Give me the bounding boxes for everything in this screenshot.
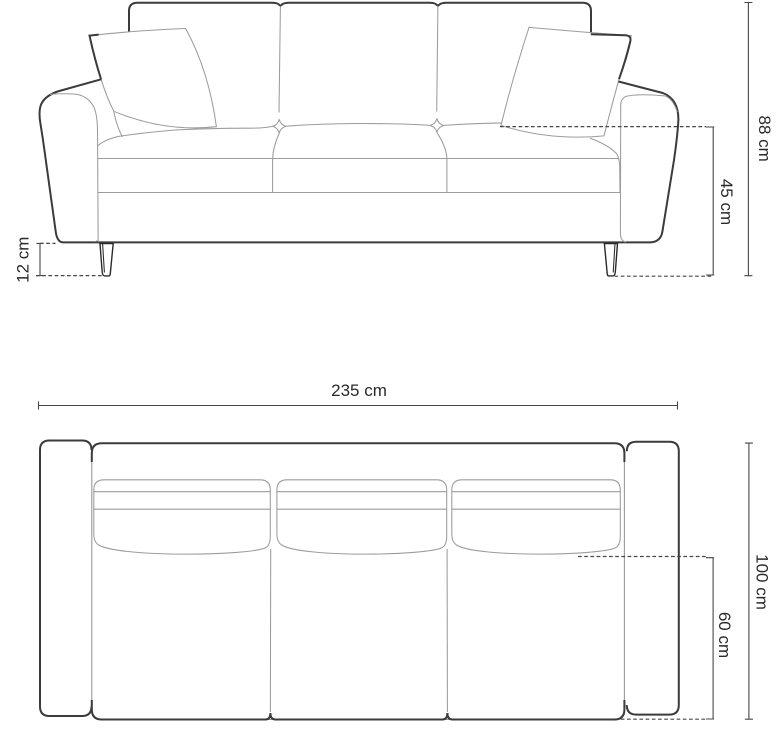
svg-text:60 cm: 60 cm <box>715 612 734 658</box>
svg-text:88 cm: 88 cm <box>755 116 774 162</box>
svg-text:45 cm: 45 cm <box>717 179 736 225</box>
svg-text:235 cm: 235 cm <box>331 381 387 400</box>
svg-text:12 cm: 12 cm <box>13 237 32 283</box>
svg-text:100 cm: 100 cm <box>753 554 772 610</box>
